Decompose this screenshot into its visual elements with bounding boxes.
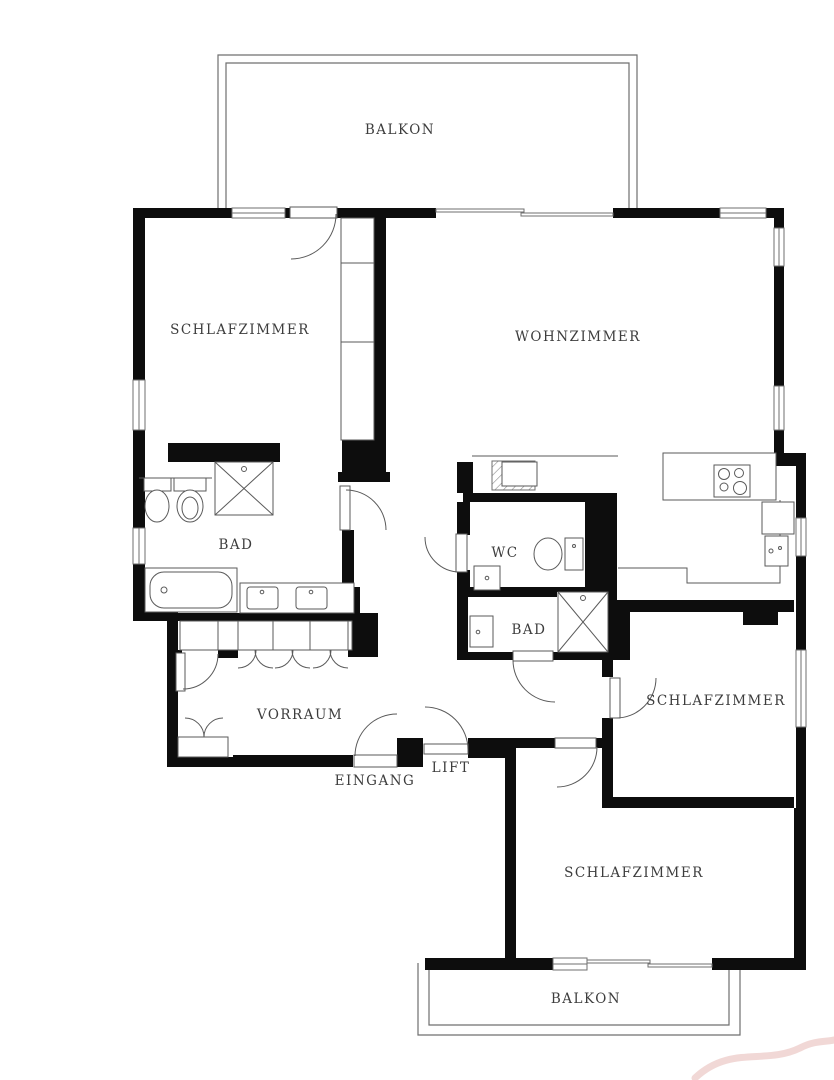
wall-segment [425,958,553,970]
wall-segment [457,462,473,493]
balcony-door [290,207,337,259]
entrance-door [354,714,397,767]
label-schlafzimmer-sued: SCHLAFZIMMER [564,865,704,881]
wall-segment [774,266,784,386]
wall-segment [602,797,794,808]
window [720,208,766,218]
floorplan-drawing: BALKON SCHLAFZIMMER WOHNZIMMER BAD WC BA… [0,0,834,1080]
wall-segment [133,208,232,218]
label-vorraum: VORRAUM [256,707,343,723]
bidet [174,478,206,522]
wc-washbasin [474,566,500,590]
wall-segment [774,214,784,228]
label-balkon-top: BALKON [365,122,435,138]
label-bad-small: BAD [512,622,547,638]
label-lift: LIFT [432,760,471,776]
closet-double-door [313,650,348,668]
wall-segment [168,443,280,462]
window [796,518,806,556]
wall-segment [553,652,617,660]
sliding-door [436,209,524,212]
wall-segment [457,597,468,652]
sliding-door [648,964,712,967]
wall-segment [712,958,806,970]
lift-door [424,707,468,754]
window [774,386,784,430]
bifold-closet-door [185,718,223,737]
floorplan-page: BALKON SCHLAFZIMMER WOHNZIMMER BAD WC BA… [0,0,834,1080]
toilet [144,478,171,522]
wall-segment [774,430,784,455]
closet-double-door [238,650,273,668]
label-wohnzimmer: WOHNZIMMER [515,329,641,345]
wall-segment [457,652,513,660]
watermark-fragment [695,1040,834,1078]
wc-door [425,534,467,572]
wall-segment [613,600,630,660]
label-eingang: EINGANG [335,773,416,789]
wall-segment [374,213,386,477]
sliding-door [587,960,650,963]
wall-segment [516,738,555,748]
wall-segment [178,757,233,767]
wall-segment [796,727,806,808]
wall-segment [613,208,720,218]
small-bath-shower [558,592,608,652]
wc-toilet [534,538,583,570]
window [796,650,806,727]
sliding-door [521,213,613,216]
wall-segment [602,660,613,677]
wall-segment [505,748,516,963]
room-labels: BALKON SCHLAFZIMMER WOHNZIMMER BAD WC BA… [170,122,786,1007]
wall-segment [743,612,778,625]
wall-segment [796,556,806,650]
wall-segment [774,453,806,466]
wall-segment [218,650,238,658]
small-bath-washbasin [470,616,493,647]
bathtub [145,568,237,612]
window [553,958,587,970]
closet-row [180,621,352,650]
window [774,228,784,266]
cooktop [714,465,750,497]
wall-segment [342,530,354,590]
label-schlafzimmer-ost: SCHLAFZIMMER [646,693,786,709]
double-washbasin [240,583,354,613]
wall-segment [457,502,470,535]
shaft [492,461,537,490]
wall-segment [557,587,608,592]
wardrobe [341,218,374,440]
small-bath-door [513,651,555,702]
kitchen-sink [765,536,788,566]
wall-segment [133,562,145,614]
label-bad-main: BAD [219,537,254,553]
shoe-cabinet [178,737,228,757]
wall-segment [133,430,145,530]
hall-closet-door [176,653,218,691]
window [232,208,285,218]
closet-double-door [275,650,310,668]
wall-segment [602,718,613,742]
south-bedroom-door [555,738,597,787]
wall-segment [794,808,806,966]
wall-segment [133,208,145,382]
window [133,380,145,430]
wall-segment [342,440,386,477]
bath-door [340,486,386,530]
wall-segment [397,738,423,767]
shower [215,462,273,515]
wall-segment [796,466,806,518]
label-balkon-unten: BALKON [551,991,621,1007]
label-wc: WC [491,545,518,561]
wall-segment [170,613,357,621]
wall-segment [613,600,794,612]
label-schlafzimmer-nw: SCHLAFZIMMER [170,322,310,338]
wall-segment [233,755,353,767]
wall-segment [338,472,390,482]
wall-segment [337,208,436,218]
window [133,528,145,564]
wall-segment [463,493,617,502]
